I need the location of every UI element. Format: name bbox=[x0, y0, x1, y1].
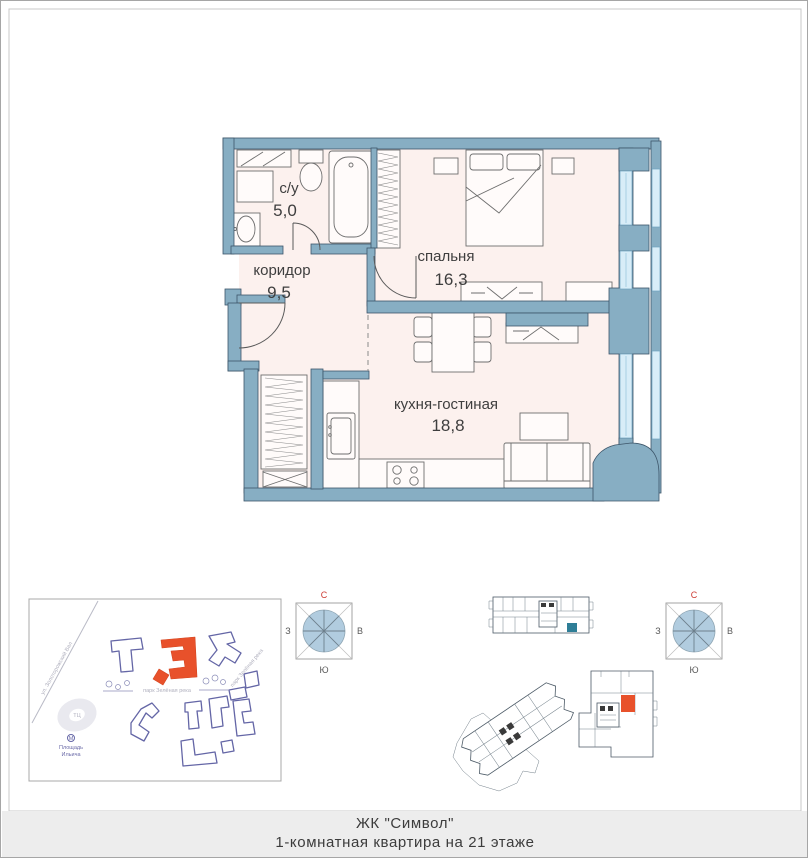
apartment-subtitle: 1-комнатная квартира на 21 этаже bbox=[275, 834, 534, 851]
chair bbox=[473, 342, 491, 362]
nightstand-right bbox=[552, 158, 574, 174]
toilet-tank bbox=[299, 150, 323, 163]
park-label: парк Зелёная река bbox=[143, 688, 192, 694]
bathroom-cabinet bbox=[237, 171, 273, 202]
site-map: ул. Золоторожский Вал ТЦ bbox=[29, 599, 281, 781]
project-title: ЖК "Символ" bbox=[356, 815, 454, 832]
mall-label: ТЦ bbox=[73, 713, 80, 719]
kitchen-counter-bottom bbox=[359, 459, 505, 489]
compass-north-label: С bbox=[691, 590, 698, 600]
svg-text:М: М bbox=[69, 736, 74, 742]
compass-west-label: З bbox=[285, 626, 290, 636]
toilet-bowl bbox=[300, 163, 322, 191]
metro-label-line2: Ильича bbox=[61, 752, 81, 758]
page: с/у 5,0 коридор 9,5 спальня 16,3 кухня-г… bbox=[0, 0, 808, 858]
chair bbox=[473, 317, 491, 337]
bedroom-area-label: 16,3 bbox=[434, 270, 467, 289]
stove bbox=[387, 462, 424, 488]
facade-glazing bbox=[652, 169, 660, 227]
coffee-table bbox=[520, 413, 568, 440]
compass-south-label: Ю bbox=[319, 665, 328, 675]
compass-north-label: С bbox=[321, 590, 328, 600]
unit-highlight-orange bbox=[621, 695, 635, 712]
nightstand-left bbox=[434, 158, 458, 174]
metro-label-line1: Площадь bbox=[59, 745, 83, 751]
facade-glazing bbox=[652, 247, 660, 291]
chair bbox=[414, 317, 432, 337]
compass-east-label: В bbox=[357, 626, 363, 636]
compass-east-label: В bbox=[727, 626, 733, 636]
floor-plan: с/у 5,0 коридор 9,5 спальня 16,3 кухня-г… bbox=[223, 138, 661, 501]
kitchen-name-label: кухня-гостиная bbox=[394, 396, 498, 413]
bedroom-name-label: спальня bbox=[418, 248, 475, 265]
floorplate-overview bbox=[489, 597, 593, 633]
chair bbox=[414, 342, 432, 362]
pillow bbox=[507, 154, 540, 170]
floor-fragment-plan bbox=[579, 671, 657, 757]
bathroom-name-label: с/у bbox=[279, 180, 299, 197]
bathroom-area-label: 5,0 bbox=[273, 201, 297, 220]
bedroom-low-unit bbox=[566, 282, 612, 303]
unit-highlight-teal bbox=[567, 623, 577, 632]
facade-glazing bbox=[652, 351, 660, 439]
dining-table bbox=[432, 312, 474, 372]
compass-south-label: Ю bbox=[689, 665, 698, 675]
curved-bay-wall bbox=[593, 443, 659, 501]
corridor-area-label: 9,5 bbox=[267, 283, 291, 302]
kitchen-area-label: 18,8 bbox=[431, 416, 464, 435]
apartment-plan-screenshot: с/у 5,0 коридор 9,5 спальня 16,3 кухня-г… bbox=[1, 1, 808, 858]
compass-west-label: З bbox=[655, 626, 660, 636]
corridor-name-label: коридор bbox=[253, 262, 310, 279]
pillow bbox=[470, 154, 503, 170]
